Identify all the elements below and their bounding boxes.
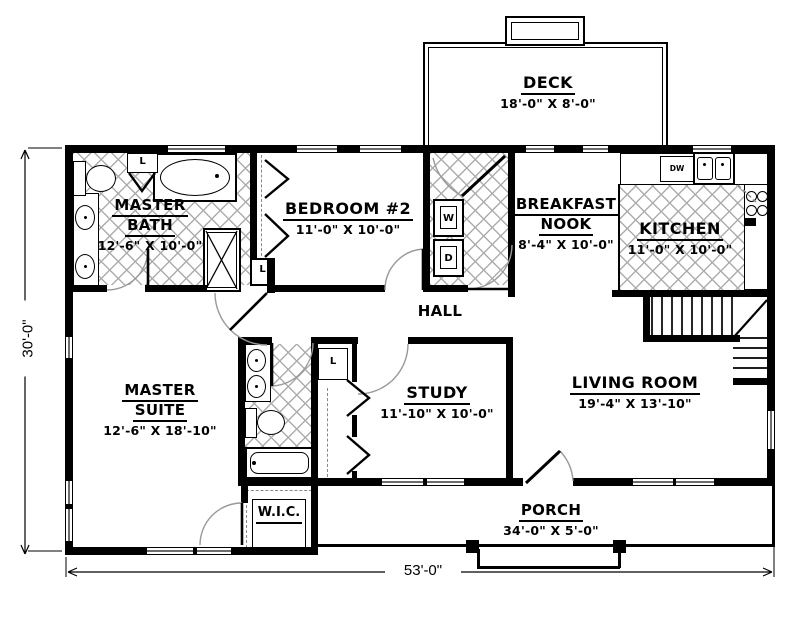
kitchen-name: KITCHEN xyxy=(637,220,723,241)
living-room-label: LIVING ROOM 19'-4" X 13'-10" xyxy=(550,374,720,411)
breakfast-nook-dims: 8'-4" X 10'-0" xyxy=(506,238,626,252)
window-study-a xyxy=(382,478,423,486)
wic-label: W.I.C. xyxy=(250,506,308,524)
window-suite-left-3 xyxy=(65,509,73,541)
porch-dims: 34'-0" X 5'-0" xyxy=(471,524,631,538)
window-suite-bottom-b xyxy=(197,547,231,555)
hall-label: HALL xyxy=(395,303,485,320)
hall-toilet-bowl xyxy=(257,410,285,435)
dryer-box: D xyxy=(433,239,464,277)
deck-label: DECK 18'-0" X 8'-0" xyxy=(448,74,648,111)
master-bath-name-1: MASTER xyxy=(112,197,187,217)
window-bedroom2-a xyxy=(297,145,337,153)
porch-floor-line xyxy=(318,544,775,547)
stair-mid-wall xyxy=(643,335,740,342)
bathtub-oval xyxy=(160,159,230,196)
window-nook-b xyxy=(583,145,608,153)
window-suite-left-2 xyxy=(65,481,73,504)
linen-label-hall: L xyxy=(250,264,275,275)
kitchen-south-wall xyxy=(612,290,775,297)
wic-name: W.I.C. xyxy=(256,506,302,524)
hall-bathtub-inner xyxy=(250,452,309,474)
breakfast-nook-name-1: BREAKFAST xyxy=(514,196,618,216)
linen-label-bath: L xyxy=(127,156,158,167)
overall-width-dimension: 53'-0" xyxy=(385,562,461,579)
master-suite-name-2: SUITE xyxy=(133,402,188,422)
washer-box: W xyxy=(433,199,464,237)
window-kitchen xyxy=(693,145,731,153)
master-bath-south-wall-west xyxy=(65,285,107,292)
study-dims: 11'-10" X 10'-0" xyxy=(367,407,507,421)
master-suite-name-1: MASTER xyxy=(122,382,197,402)
stove-burner-3 xyxy=(746,205,757,216)
study-west-wall-c xyxy=(352,471,357,480)
wic-right-wall xyxy=(311,486,318,547)
study-closet-dashed-line xyxy=(327,388,328,477)
hall-bath-east-wall xyxy=(311,337,318,480)
deck-steps xyxy=(505,16,585,46)
staircase-treads xyxy=(652,297,767,368)
washer-inner-box: W xyxy=(440,206,457,229)
study-west-wall-a xyxy=(352,337,357,382)
sink-faucet-dot-2 xyxy=(721,163,724,166)
hall-bath-north-wall xyxy=(238,337,272,344)
window-suite-left xyxy=(65,337,73,358)
window-study-b xyxy=(427,478,464,486)
sink-dot-3 xyxy=(255,359,258,362)
dishwasher-box: DW xyxy=(660,156,694,182)
kitchen-sink-basin-left xyxy=(697,157,713,180)
deck-dims: 18'-0" X 8'-0" xyxy=(448,97,648,111)
overall-height-dimension: 30'-0" xyxy=(20,301,37,377)
wic-west-wall xyxy=(241,486,248,503)
master-bath-label: MASTER BATH 12'-6" X 10'-0" xyxy=(85,197,215,253)
corridor-west-wall xyxy=(423,145,430,292)
sink-faucet-dot-1 xyxy=(703,163,706,166)
study-east-wall xyxy=(506,337,513,480)
porch-name: PORCH xyxy=(519,502,583,522)
master-toilet-bowl xyxy=(86,165,116,192)
hall-tub-drain-dot xyxy=(252,461,256,465)
deck-name: DECK xyxy=(521,74,575,95)
window-living-right xyxy=(767,411,775,449)
breakfast-nook-label: BREAKFAST NOOK 8'-4" X 10'-0" xyxy=(506,196,626,252)
kitchen-sink-basin-right xyxy=(715,157,731,180)
bath-bedroom-divider-wall xyxy=(250,145,257,258)
bedroom2-label: BEDROOM #2 11'-0" X 10'-0" xyxy=(273,200,423,237)
stove-burner-1 xyxy=(746,191,757,202)
porch-label: PORCH 34'-0" X 5'-0" xyxy=(471,502,631,538)
sink-dot-2 xyxy=(84,265,87,268)
bedroom2-name: BEDROOM #2 xyxy=(283,200,413,221)
corridor-south-stub-wall xyxy=(423,285,468,292)
hall-name: HALL xyxy=(395,303,485,320)
bathtub-drain-dot xyxy=(215,174,219,178)
exterior-wall-bottom-east xyxy=(573,478,775,486)
study-name: STUDY xyxy=(404,384,469,405)
deck-steps-inner-line xyxy=(511,22,579,40)
bedroom2-closet-dashed-line xyxy=(261,150,262,256)
master-suite-label: MASTER SUITE 12'-6" X 18'-10" xyxy=(90,382,230,438)
stair-lower-wall xyxy=(733,378,775,385)
window-nook-a xyxy=(526,145,554,153)
study-label: STUDY 11'-10" X 10'-0" xyxy=(367,384,507,421)
window-living-a xyxy=(633,478,673,486)
bedroom2-dims: 11'-0" X 10'-0" xyxy=(273,223,423,237)
exterior-wall-bottom-west xyxy=(238,478,523,486)
master-bath-dims: 12'-6" X 10'-0" xyxy=(85,239,215,253)
porch-post-right xyxy=(613,540,626,553)
linen-label-study: L xyxy=(318,356,348,367)
master-toilet-tank xyxy=(73,161,86,196)
window-living-b xyxy=(676,478,714,486)
study-west-wall-b xyxy=(352,415,357,437)
window-master-bath xyxy=(168,145,225,153)
living-room-name: LIVING ROOM xyxy=(570,374,700,395)
hall-bath-west-wall xyxy=(238,337,245,480)
master-bath-name-2: BATH xyxy=(125,217,175,237)
hall-toilet-tank xyxy=(245,408,257,438)
porch-right-edge-line xyxy=(772,486,775,546)
stove-control-box xyxy=(744,218,756,226)
study-north-wall xyxy=(408,337,513,344)
porch-post-left xyxy=(466,540,479,553)
breakfast-nook-name-2: NOOK xyxy=(539,216,594,236)
living-room-dims: 19'-4" X 13'-10" xyxy=(550,397,720,411)
dryer-inner-box: D xyxy=(440,246,457,269)
floor-plan: W D DW xyxy=(0,0,800,637)
kitchen-dims: 11'-0" X 10'-0" xyxy=(615,243,745,257)
sink-dot-4 xyxy=(255,385,258,388)
kitchen-label: KITCHEN 11'-0" X 10'-0" xyxy=(615,220,745,257)
master-bath-south-wall-east xyxy=(145,285,207,292)
bedroom2-south-wall xyxy=(267,285,385,292)
porch-step-bottom xyxy=(477,566,620,569)
window-bedroom2-b xyxy=(360,145,401,153)
master-suite-dims: 12'-6" X 18'-10" xyxy=(90,424,230,438)
window-suite-bottom-a xyxy=(147,547,193,555)
